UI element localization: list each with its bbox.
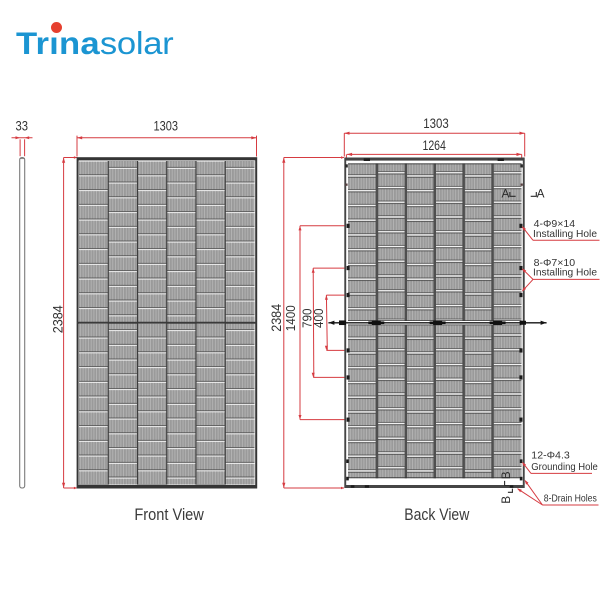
svg-text:400: 400	[312, 309, 326, 329]
svg-text:12-Φ4.3: 12-Φ4.3	[531, 450, 570, 461]
svg-text:33: 33	[16, 119, 29, 134]
svg-text:Installing Hole: Installing Hole	[533, 268, 597, 279]
svg-text:A: A	[537, 186, 545, 200]
svg-text:1303: 1303	[154, 119, 179, 134]
svg-text:2384: 2384	[50, 305, 65, 333]
svg-text:A: A	[501, 186, 509, 200]
svg-text:B: B	[499, 496, 513, 504]
svg-text:1303: 1303	[423, 116, 449, 131]
svg-text:Grounding Hole: Grounding Hole	[531, 462, 598, 473]
svg-text:1400: 1400	[284, 305, 298, 331]
svg-text:2384: 2384	[269, 303, 284, 331]
svg-text:Installing Hole: Installing Hole	[533, 229, 597, 240]
svg-text:8-Drain Holes: 8-Drain Holes	[544, 493, 597, 504]
svg-text:1264: 1264	[422, 138, 446, 153]
svg-text:Back View: Back View	[404, 506, 469, 524]
svg-text:B: B	[499, 471, 513, 479]
svg-text:Front View: Front View	[134, 506, 204, 524]
